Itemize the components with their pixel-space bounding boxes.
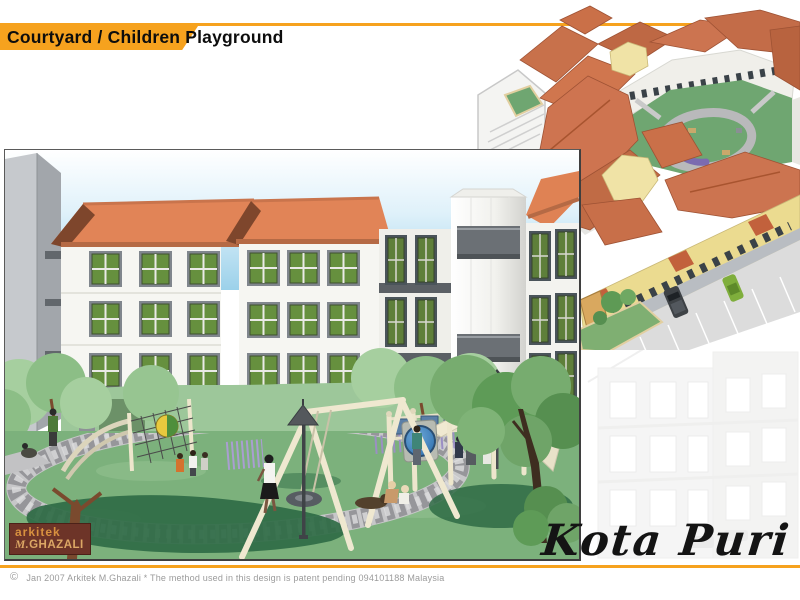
logo-initial: M. [15,539,29,551]
copyright-text: Jan 2007 Arkitek M.Ghazali * The method … [26,573,444,583]
logo-line1: arkitek [15,526,84,539]
project-name: Kota Puri [539,516,793,566]
page-title: Courtyard / Children Playground [7,27,284,48]
footer-accent-rule [0,565,800,568]
logo-line2: M.GHAZALI [15,539,84,551]
logo-rest: GHAZALI [29,539,84,551]
copyright-line: © Jan 2007 Arkitek M.Ghazali * The metho… [10,572,444,583]
architect-logo: arkitek M.GHAZALI [9,523,91,555]
main-rendering: arkitek M.GHAZALI [4,149,581,561]
copyright-icon: © [10,572,18,583]
